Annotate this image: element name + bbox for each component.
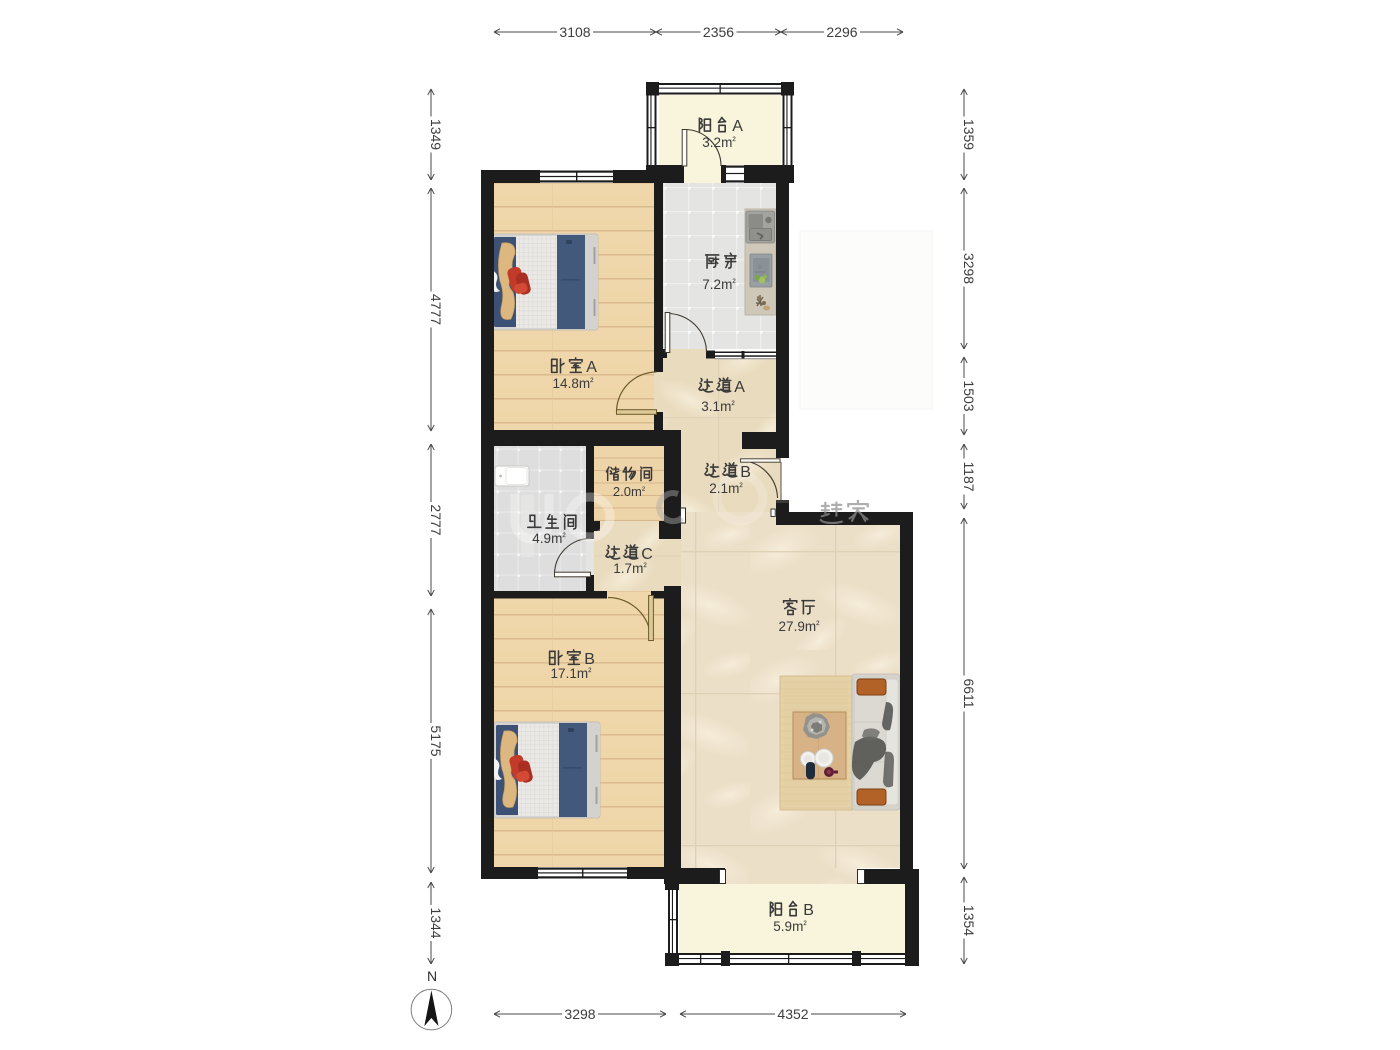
svg-text:5.9m²: 5.9m² [773, 919, 807, 934]
svg-text:B: B [803, 902, 814, 919]
svg-text:14.8m²: 14.8m² [553, 376, 595, 391]
svg-text:27.9m²: 27.9m² [779, 619, 821, 634]
svg-text:4.9m²: 4.9m² [532, 531, 566, 546]
svg-text:A: A [732, 118, 743, 135]
svg-text:1.7m²: 1.7m² [613, 561, 647, 576]
svg-text:A: A [734, 379, 745, 396]
svg-text:3298: 3298 [564, 1006, 595, 1022]
svg-text:3.1m²: 3.1m² [701, 399, 735, 414]
svg-text:1354: 1354 [961, 905, 977, 936]
svg-text:3298: 3298 [961, 253, 977, 284]
svg-text:B: B [740, 464, 751, 481]
svg-text:7.2m²: 7.2m² [702, 277, 736, 292]
svg-text:2356: 2356 [703, 24, 734, 40]
svg-text:N: N [427, 968, 437, 984]
svg-text:4777: 4777 [428, 294, 444, 325]
svg-text:5175: 5175 [428, 725, 444, 756]
svg-text:6611: 6611 [961, 678, 977, 708]
svg-text:17.1m²: 17.1m² [551, 666, 593, 681]
svg-text:3.2m²: 3.2m² [702, 135, 736, 150]
svg-text:1187: 1187 [961, 461, 977, 491]
svg-text:2296: 2296 [826, 24, 857, 40]
svg-text:2.1m²: 2.1m² [709, 481, 743, 496]
svg-text:1344: 1344 [428, 907, 444, 938]
svg-text:1359: 1359 [961, 119, 977, 150]
svg-text:2.0m²: 2.0m² [613, 484, 646, 499]
svg-text:1349: 1349 [428, 119, 444, 150]
svg-text:2777: 2777 [428, 504, 444, 535]
svg-text:A: A [586, 359, 597, 376]
svg-text:1503: 1503 [961, 380, 977, 411]
svg-text:4352: 4352 [777, 1006, 808, 1022]
svg-text:3108: 3108 [559, 24, 590, 40]
